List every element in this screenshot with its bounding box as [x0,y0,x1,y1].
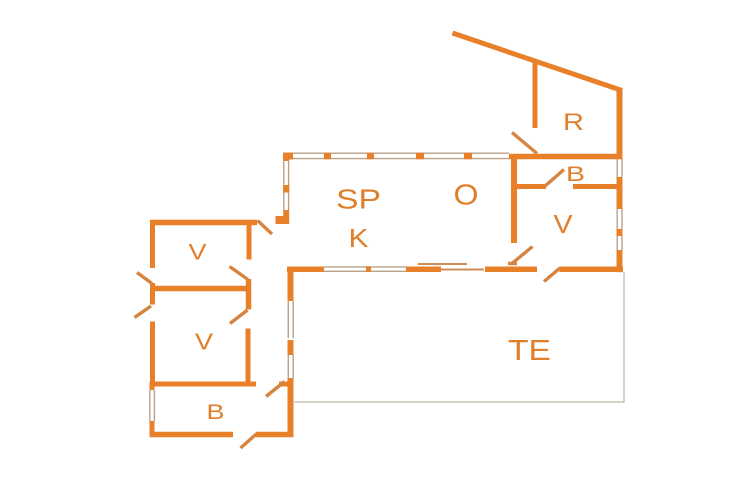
svg-text:SP: SP [336,184,381,215]
svg-text:K: K [349,223,370,253]
svg-text:B: B [207,400,225,424]
svg-text:V: V [189,240,207,265]
svg-text:V: V [554,211,573,239]
svg-text:R: R [563,109,584,136]
svg-text:V: V [195,328,213,354]
svg-text:TE: TE [508,335,551,367]
svg-text:B: B [566,162,585,186]
svg-text:O: O [454,180,479,212]
